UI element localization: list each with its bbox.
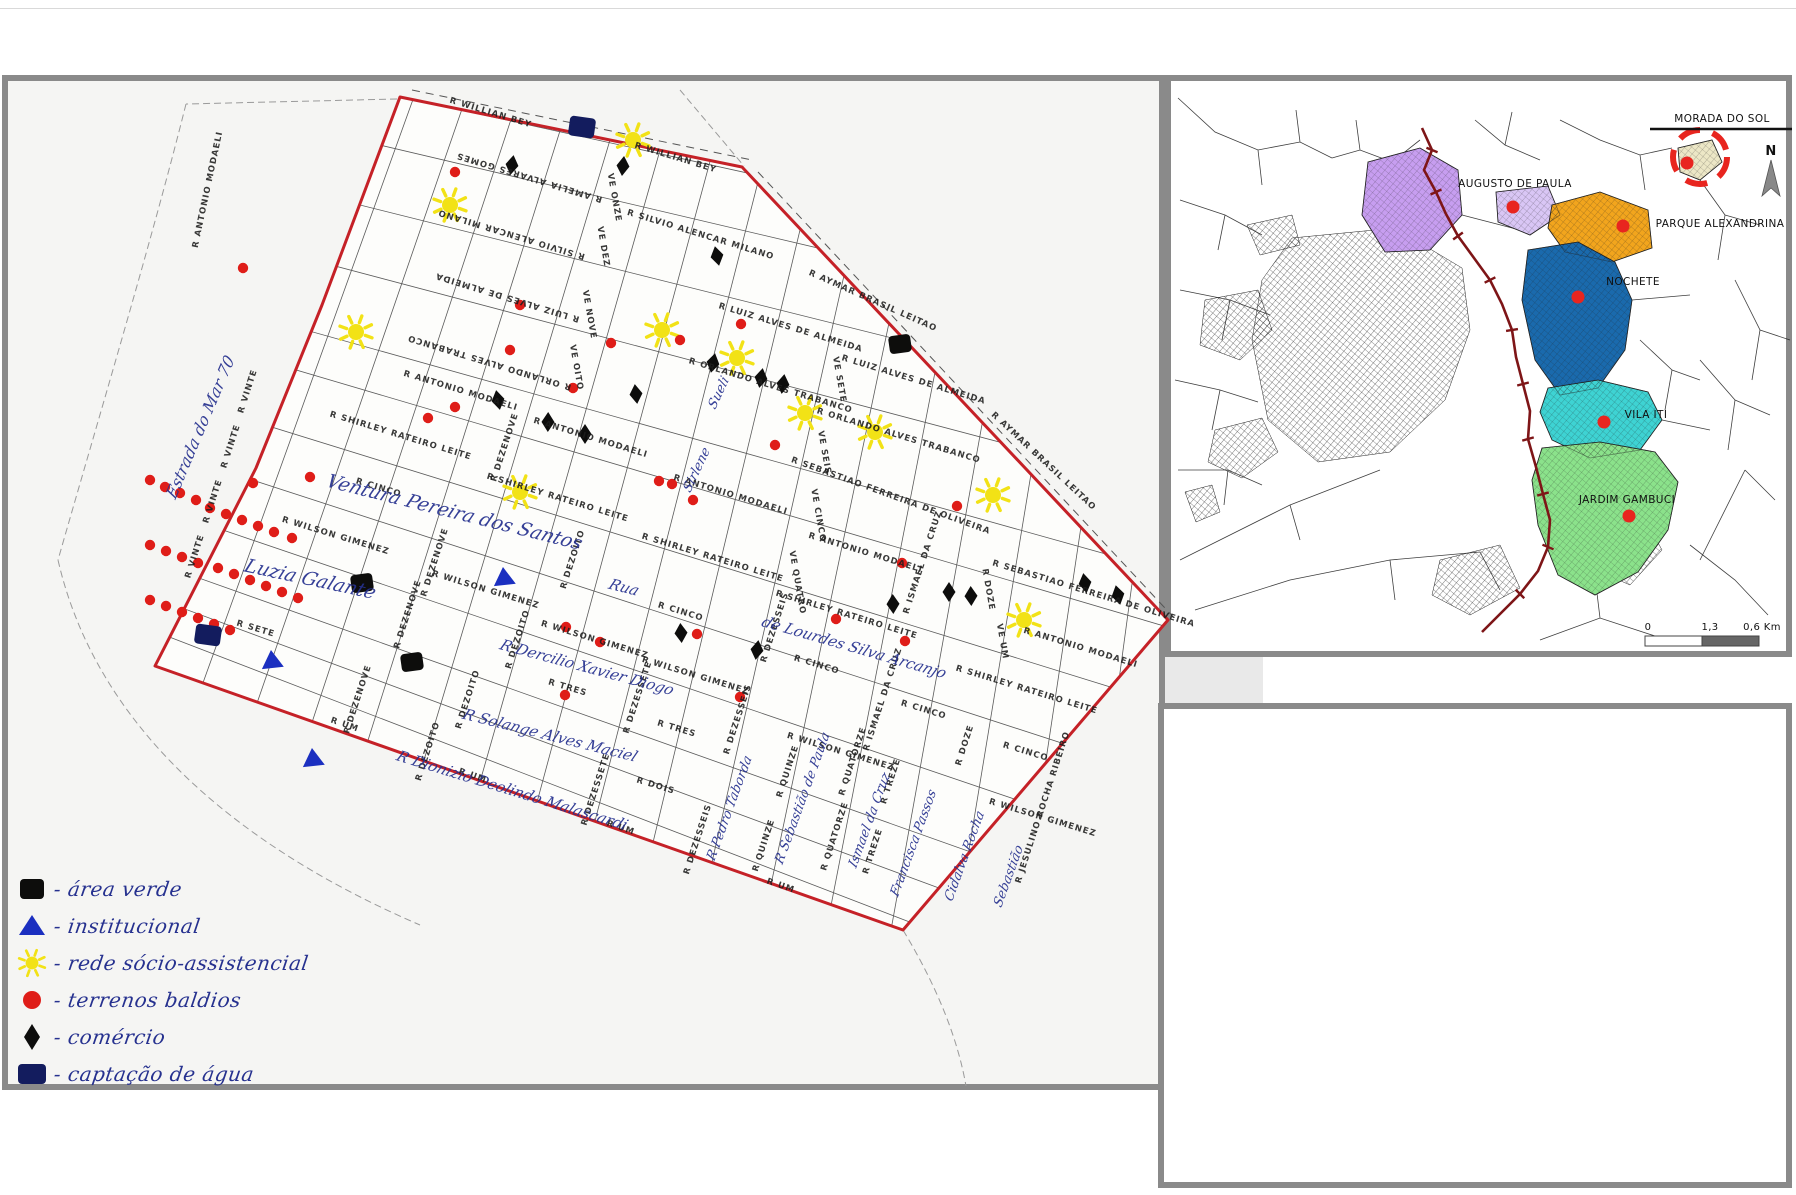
triangle-icon bbox=[14, 909, 50, 943]
sun-ray bbox=[27, 970, 29, 975]
legend-label: - comércio bbox=[52, 1025, 167, 1049]
page-top-rule bbox=[0, 8, 1796, 9]
legend-label: - rede sócio-assistencial bbox=[52, 951, 310, 975]
inset-map-panel bbox=[1165, 75, 1792, 657]
diamond-icon bbox=[14, 1020, 50, 1054]
legend-item: - rede sócio-assistencial bbox=[14, 944, 309, 981]
legend-label: - institucional bbox=[52, 914, 202, 938]
legend-label: - terrenos baldios bbox=[52, 988, 242, 1012]
legend-symbol bbox=[14, 946, 54, 980]
legend-item: - comércio bbox=[14, 1018, 309, 1055]
legend-item: - terrenos baldios bbox=[14, 981, 309, 1018]
scanned-map-document: { "colors": { "boundary": "#c52127", "su… bbox=[0, 0, 1796, 1195]
sun-ray bbox=[26, 950, 28, 955]
red-circle-icon bbox=[14, 983, 50, 1017]
water-square-icon bbox=[14, 1057, 50, 1091]
legend-label: - área verde bbox=[52, 877, 183, 901]
legend-symbol bbox=[14, 1057, 54, 1091]
legend-shape bbox=[23, 991, 41, 1009]
sun-ray bbox=[39, 957, 44, 959]
sun-ray bbox=[35, 970, 37, 975]
map-legend: - área verde- institucional- rede sócio-… bbox=[14, 870, 309, 1092]
sun-ray bbox=[35, 950, 37, 955]
legend-symbol bbox=[14, 983, 54, 1017]
legend-shape bbox=[18, 1064, 46, 1084]
legend-shape bbox=[24, 1024, 40, 1050]
legend-item: - institucional bbox=[14, 907, 309, 944]
sun-icon bbox=[14, 946, 50, 980]
green-square-icon bbox=[14, 872, 50, 906]
legend-symbol bbox=[14, 1020, 54, 1054]
sun-core bbox=[26, 956, 39, 969]
legend-item: - área verde bbox=[14, 870, 309, 907]
sun-ray bbox=[20, 966, 25, 968]
legend-symbol bbox=[14, 909, 54, 943]
empty-notes-panel bbox=[1158, 703, 1792, 1188]
legend-shape bbox=[20, 879, 44, 899]
legend-symbol bbox=[14, 872, 54, 906]
sun-ray bbox=[40, 965, 45, 967]
sun-ray bbox=[19, 958, 24, 960]
legend-shape bbox=[19, 915, 45, 935]
legend-label: - captação de água bbox=[52, 1062, 255, 1086]
panel-gap bbox=[1165, 657, 1263, 703]
social-network-sun-icon bbox=[19, 950, 45, 976]
legend-item: - captação de água bbox=[14, 1055, 309, 1092]
